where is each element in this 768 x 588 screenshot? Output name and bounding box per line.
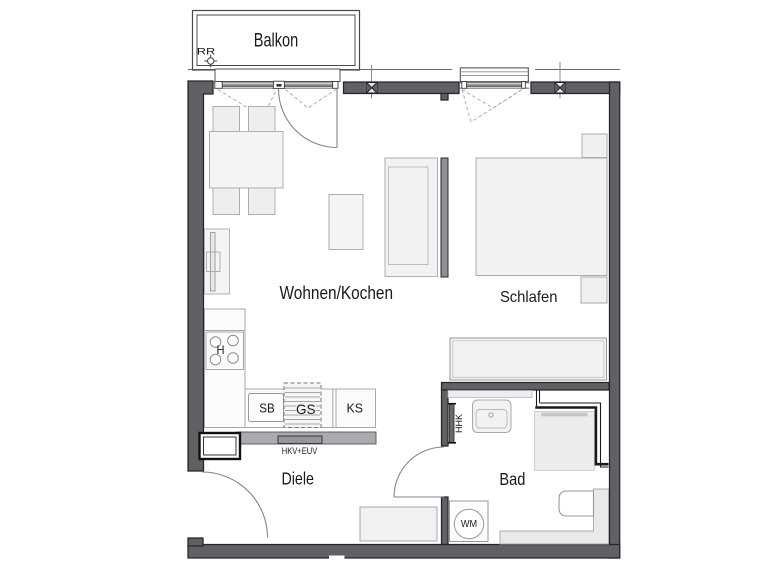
svg-text:HKV+EUV: HKV+EUV [282, 446, 318, 456]
svg-text:H: H [217, 343, 225, 357]
svg-text:Diele: Diele [281, 468, 314, 488]
svg-text:Bad: Bad [499, 469, 525, 489]
svg-text:Schlafen: Schlafen [500, 289, 558, 306]
svg-text:WM: WM [461, 519, 477, 530]
svg-text:HHK: HHK [454, 414, 464, 433]
svg-text:Wohnen/Kochen: Wohnen/Kochen [280, 283, 394, 303]
svg-text:KS: KS [347, 401, 364, 416]
svg-text:Balkon: Balkon [254, 31, 299, 52]
svg-text:SB: SB [259, 401, 275, 416]
svg-text:RR: RR [197, 47, 216, 57]
svg-text:GS: GS [296, 401, 316, 417]
